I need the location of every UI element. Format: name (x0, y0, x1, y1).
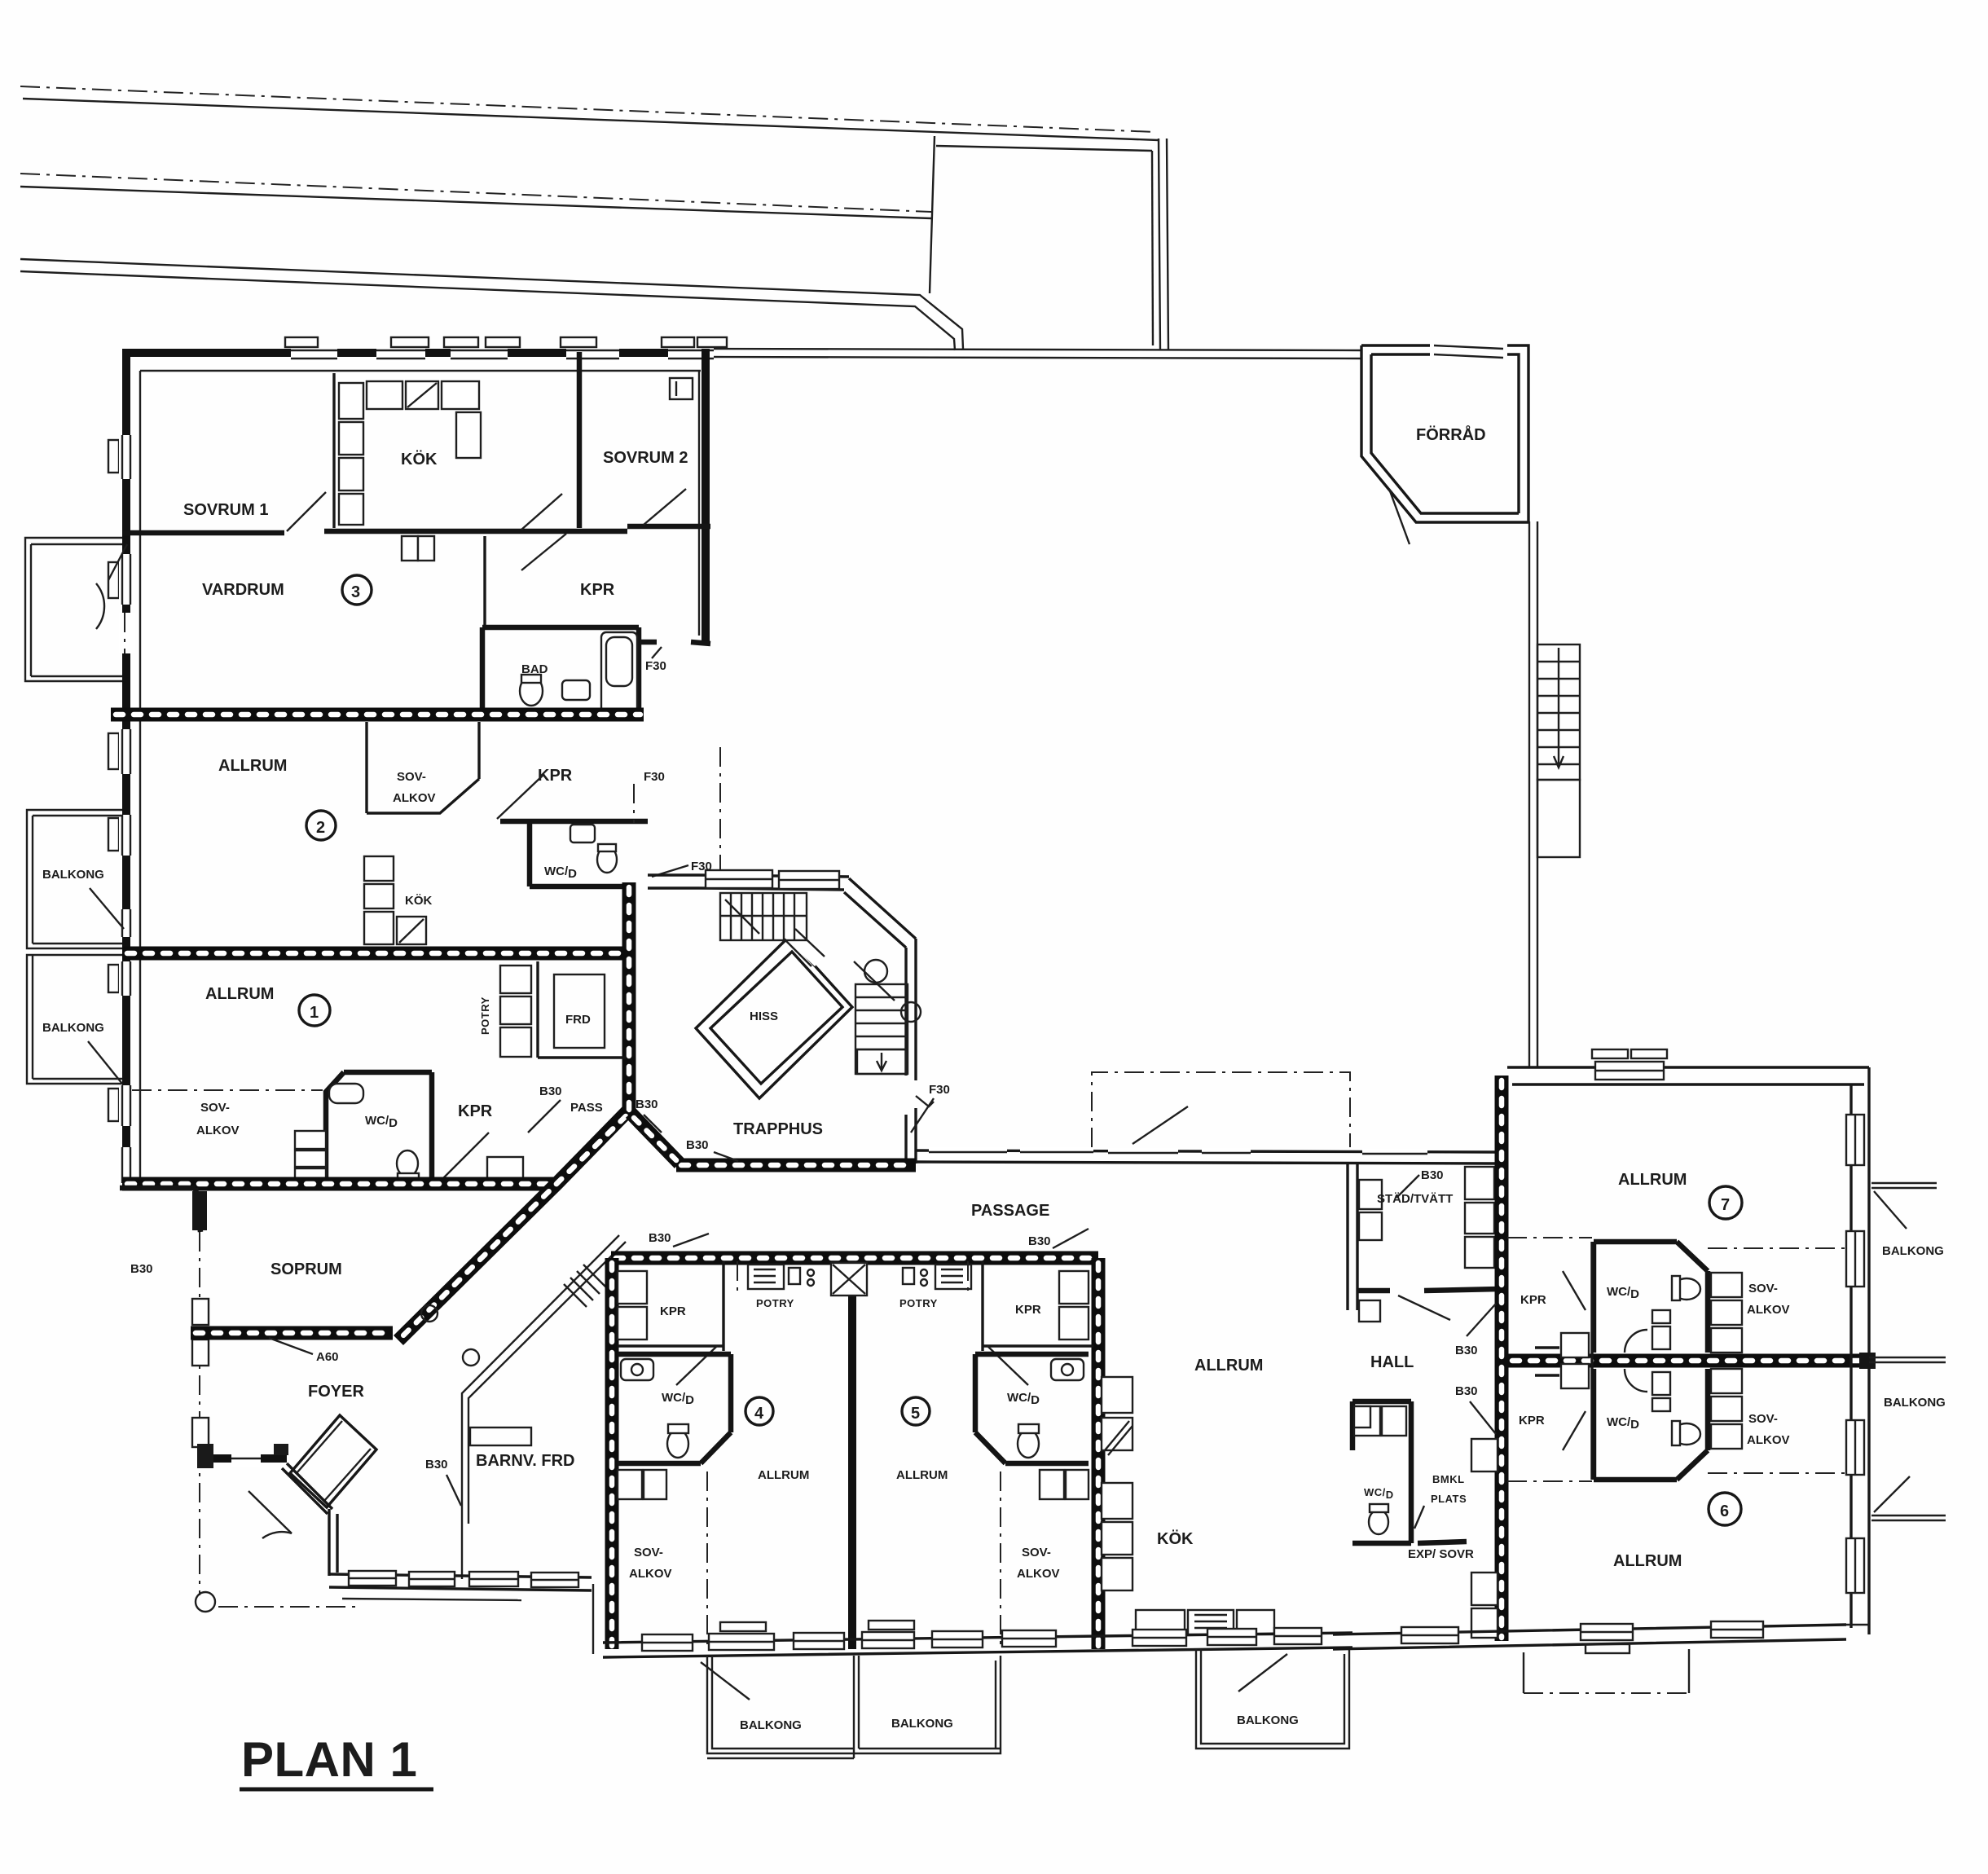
svg-text:SOV-: SOV- (1748, 1282, 1778, 1296)
svg-text:BALKONG: BALKONG (1882, 1244, 1944, 1258)
svg-text:KÖK: KÖK (1157, 1529, 1194, 1548)
svg-text:B30: B30 (1455, 1384, 1478, 1398)
svg-text:F30: F30 (645, 659, 666, 673)
svg-text:SOVRUM 2: SOVRUM 2 (603, 449, 688, 467)
svg-text:EXP/ SOVR: EXP/ SOVR (1408, 1547, 1474, 1561)
svg-text:B30: B30 (649, 1231, 671, 1245)
svg-text:B30: B30 (130, 1262, 153, 1276)
svg-text:1: 1 (310, 1004, 319, 1022)
svg-text:ALKOV: ALKOV (1017, 1567, 1060, 1581)
svg-text:KPR: KPR (660, 1304, 686, 1318)
svg-text:VARDRUM: VARDRUM (202, 581, 284, 599)
svg-text:SOV-: SOV- (1748, 1412, 1778, 1426)
svg-text:ALKOV: ALKOV (629, 1567, 672, 1581)
svg-text:SOV-: SOV- (397, 770, 426, 784)
svg-text:KPR: KPR (1520, 1293, 1546, 1307)
svg-text:ALLRUM: ALLRUM (205, 985, 274, 1003)
svg-text:BALKONG: BALKONG (42, 1021, 104, 1035)
svg-text:POTRY: POTRY (756, 1297, 794, 1309)
svg-text:ALKOV: ALKOV (196, 1124, 240, 1137)
svg-text:BMKL: BMKL (1432, 1473, 1465, 1485)
svg-text:7: 7 (1721, 1196, 1730, 1214)
svg-text:ALKOV: ALKOV (393, 791, 436, 805)
svg-text:PLATS: PLATS (1431, 1493, 1467, 1505)
svg-text:ALKOV: ALKOV (1747, 1433, 1790, 1447)
svg-text:ALLRUM: ALLRUM (896, 1468, 948, 1482)
svg-text:ALLRUM: ALLRUM (1613, 1552, 1682, 1570)
svg-text:BALKONG: BALKONG (1237, 1713, 1299, 1727)
svg-text:SOVRUM 1: SOVRUM 1 (183, 501, 268, 519)
svg-text:PASSAGE: PASSAGE (971, 1202, 1049, 1220)
svg-text:ALLRUM: ALLRUM (1194, 1357, 1263, 1375)
svg-text:5: 5 (911, 1405, 920, 1423)
svg-text:BALKONG: BALKONG (1884, 1396, 1946, 1410)
svg-text:BARNV. FRD: BARNV. FRD (476, 1452, 575, 1470)
svg-text:FRD: FRD (565, 1013, 591, 1027)
svg-text:KPR: KPR (458, 1102, 493, 1120)
svg-text:POTRY: POTRY (479, 996, 491, 1035)
svg-text:SOV-: SOV- (634, 1546, 663, 1559)
svg-text:HISS: HISS (750, 1010, 778, 1023)
svg-text:SOV-: SOV- (200, 1101, 230, 1115)
svg-text:B30: B30 (1028, 1234, 1051, 1248)
svg-text:B30: B30 (686, 1138, 709, 1152)
svg-text:KÖK: KÖK (405, 894, 433, 908)
svg-text:B30: B30 (425, 1458, 448, 1471)
svg-text:TRAPPHUS: TRAPPHUS (733, 1120, 823, 1138)
svg-text:F30: F30 (644, 770, 665, 784)
svg-text:2: 2 (316, 819, 325, 837)
svg-text:B30: B30 (1421, 1168, 1444, 1182)
svg-text:BALKONG: BALKONG (891, 1717, 953, 1731)
svg-text:SOV-: SOV- (1022, 1546, 1051, 1559)
svg-text:B30: B30 (636, 1098, 658, 1111)
svg-text:4: 4 (754, 1405, 764, 1423)
svg-text:ALKOV: ALKOV (1747, 1303, 1790, 1317)
svg-text:ALLRUM: ALLRUM (758, 1468, 809, 1482)
svg-text:A60: A60 (316, 1350, 339, 1364)
svg-text:BALKONG: BALKONG (740, 1718, 802, 1732)
svg-text:3: 3 (351, 583, 360, 601)
svg-text:ALLRUM: ALLRUM (218, 757, 287, 775)
svg-text:KPR: KPR (1015, 1303, 1041, 1317)
svg-text:STÄD/TVÄTT: STÄD/TVÄTT (1377, 1192, 1453, 1206)
svg-text:FOYER: FOYER (308, 1383, 364, 1401)
svg-text:POTRY: POTRY (899, 1297, 938, 1309)
svg-text:KPR: KPR (580, 581, 615, 599)
svg-text:FÖRRÅD: FÖRRÅD (1416, 425, 1486, 444)
svg-text:SOPRUM: SOPRUM (270, 1260, 342, 1278)
svg-text:PASS: PASS (570, 1101, 603, 1115)
svg-text:KÖK: KÖK (401, 450, 438, 468)
svg-text:B30: B30 (539, 1084, 562, 1098)
svg-text:B30: B30 (1455, 1344, 1478, 1357)
svg-text:6: 6 (1720, 1502, 1729, 1520)
svg-text:PLAN 1: PLAN 1 (241, 1732, 417, 1787)
svg-text:ALLRUM: ALLRUM (1618, 1171, 1687, 1189)
svg-text:HALL: HALL (1370, 1353, 1414, 1371)
svg-text:BALKONG: BALKONG (42, 868, 104, 882)
svg-text:F30: F30 (929, 1083, 950, 1097)
svg-text:KPR: KPR (1519, 1414, 1545, 1427)
